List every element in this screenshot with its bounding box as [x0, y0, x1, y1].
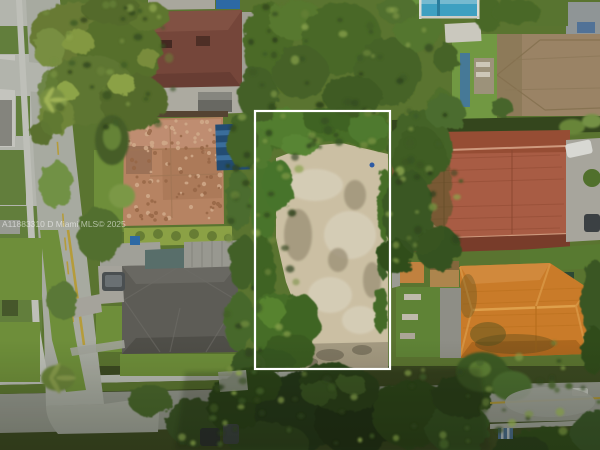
- svg-text:A11883310 D Miami MLS© 2025: A11883310 D Miami MLS© 2025: [2, 219, 126, 229]
